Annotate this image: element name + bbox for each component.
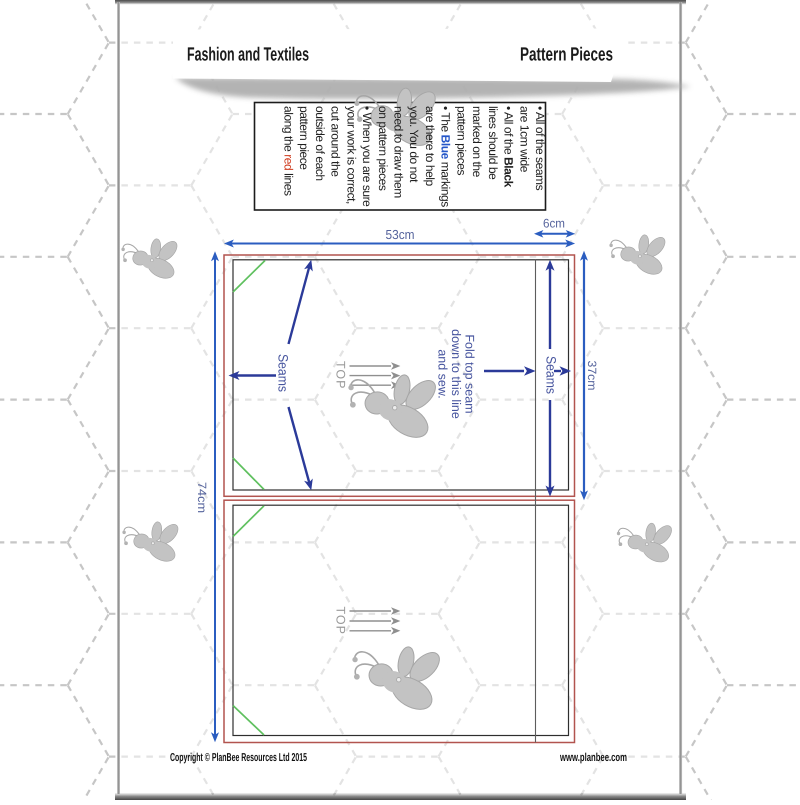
svg-text:cut around the: cut around the <box>329 106 343 177</box>
svg-text:your work is correct,: your work is correct, <box>344 106 358 204</box>
svg-text:TOP: TOP <box>334 607 348 635</box>
svg-text:• The Blue markings: • The Blue markings <box>439 106 453 207</box>
svg-text:need to draw them: need to draw them <box>392 106 406 198</box>
svg-text:Fold top seam: Fold top seam <box>463 334 477 413</box>
svg-text:Copyright © PlanBee Resources: Copyright © PlanBee Resources Ltd 2015 <box>170 752 307 764</box>
svg-text:marked on the: marked on the <box>470 106 484 178</box>
svg-text:Seams: Seams <box>276 354 291 392</box>
svg-text:• All of the seams: • All of the seams <box>533 106 547 191</box>
svg-text:outside of each: outside of each <box>313 106 327 181</box>
svg-text:are 1cm wide: are 1cm wide <box>517 106 531 173</box>
svg-text:53cm: 53cm <box>386 227 415 242</box>
svg-text:• All of the Black: • All of the Black <box>502 106 516 188</box>
svg-text:pattern pieces: pattern pieces <box>454 106 468 176</box>
svg-text:37cm: 37cm <box>585 361 599 391</box>
svg-text:Fashion and Textiles: Fashion and Textiles <box>187 45 309 66</box>
svg-text:6cm: 6cm <box>543 217 565 231</box>
svg-text:on pattern pieces: on pattern pieces <box>376 106 390 191</box>
svg-text:and sew.: and sew. <box>436 349 450 398</box>
svg-text:you. You do not: you. You do not <box>407 106 421 183</box>
svg-text:along the red lines: along the red lines <box>282 106 296 196</box>
svg-text:TOP: TOP <box>334 361 348 389</box>
svg-text:down to this line: down to this line <box>449 329 463 419</box>
svg-text:lines should be: lines should be <box>486 106 500 180</box>
svg-text:Pattern Pieces: Pattern Pieces <box>520 45 613 66</box>
svg-text:• When you are sure: • When you are sure <box>360 106 374 207</box>
svg-text:74cm: 74cm <box>195 482 209 513</box>
svg-text:are there to help: are there to help <box>423 106 437 187</box>
svg-text:pattern piece: pattern piece <box>297 106 311 170</box>
svg-text:Seams: Seams <box>544 356 559 394</box>
svg-text:www.planbee.com: www.planbee.com <box>559 752 627 764</box>
